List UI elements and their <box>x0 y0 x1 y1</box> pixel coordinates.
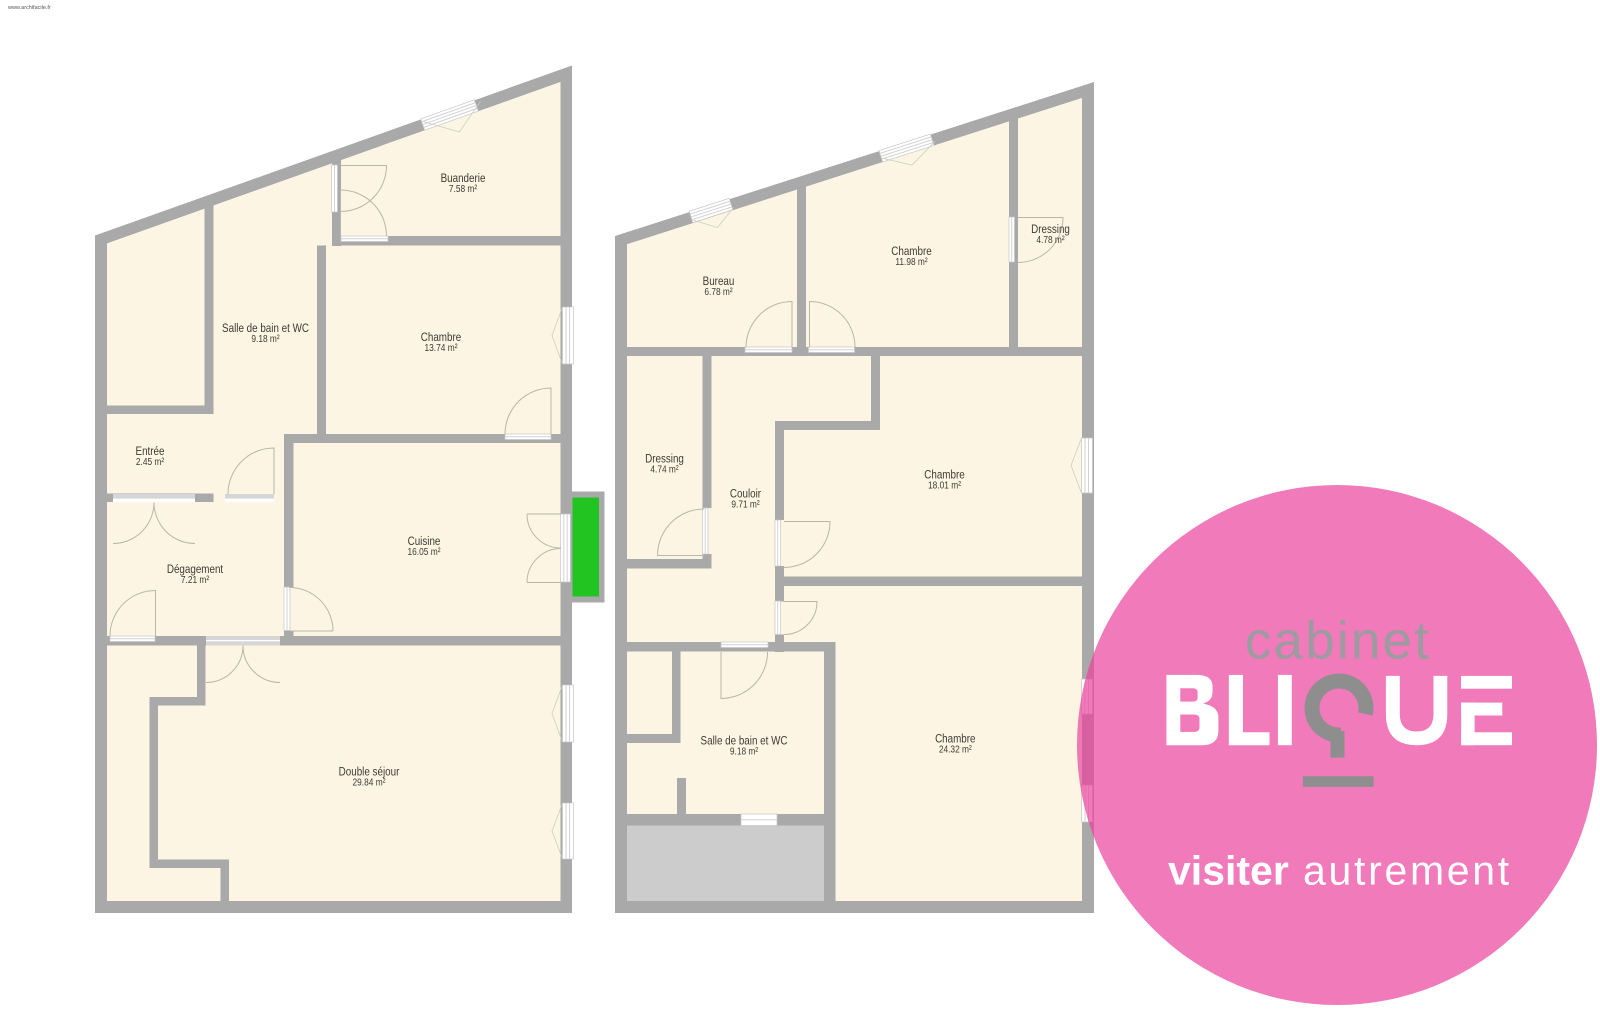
svg-text:visiter: visiter <box>1168 848 1289 894</box>
svg-text:9.18 m²: 9.18 m² <box>251 333 279 344</box>
svg-text:13.74 m²: 13.74 m² <box>425 342 458 353</box>
svg-text:24.32 m²: 24.32 m² <box>939 744 972 755</box>
svg-text:cabinet: cabinet <box>1245 612 1431 671</box>
svg-text:29.84 m²: 29.84 m² <box>353 777 386 788</box>
svg-text:4.74 m²: 4.74 m² <box>650 464 678 475</box>
svg-text:9.71 m²: 9.71 m² <box>731 499 759 510</box>
svg-text:2.45 m²: 2.45 m² <box>136 456 164 467</box>
svg-text:16.05 m²: 16.05 m² <box>408 546 441 557</box>
svg-text:9.18 m²: 9.18 m² <box>730 746 758 757</box>
svg-text:11.98 m²: 11.98 m² <box>895 256 927 267</box>
svg-text:7.21 m²: 7.21 m² <box>181 574 209 585</box>
svg-text:autrement: autrement <box>1303 848 1512 894</box>
svg-text:6.78 m²: 6.78 m² <box>704 286 732 297</box>
svg-text:7.58 m²: 7.58 m² <box>449 183 477 194</box>
svg-text:4.78 m²: 4.78 m² <box>1036 234 1064 245</box>
svg-text:www.archifacile.fr: www.archifacile.fr <box>7 5 51 11</box>
svg-text:18.01 m²: 18.01 m² <box>928 480 961 491</box>
